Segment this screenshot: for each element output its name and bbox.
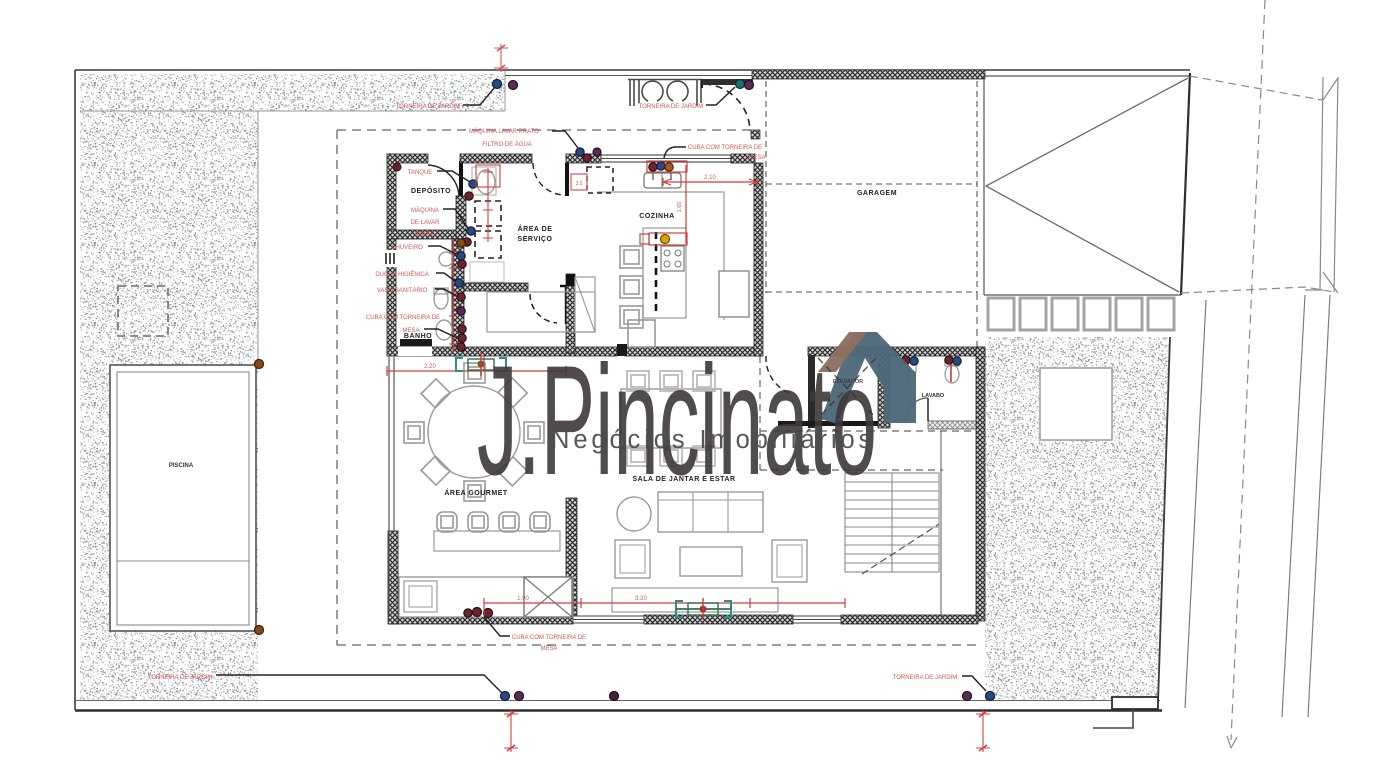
svg-text:BANHO: BANHO	[404, 333, 432, 340]
svg-text:PISCINA: PISCINA	[169, 463, 194, 469]
svg-text:TORNEIRA DE JARDIM: TORNEIRA DE JARDIM	[639, 104, 704, 110]
svg-text:CUBA COM TORNEIRA DE: CUBA COM TORNEIRA DE	[366, 315, 440, 321]
svg-text:ELEVADOR: ELEVADOR	[833, 379, 863, 385]
svg-text:TORNEIRA DE JARDIM: TORNEIRA DE JARDIM	[396, 104, 461, 110]
svg-text:DEPÓSITO: DEPÓSITO	[411, 186, 451, 195]
svg-text:MÁQUINA: MÁQUINA	[411, 207, 439, 214]
svg-text:FILTRO DE ÁGUA: FILTRO DE ÁGUA	[482, 141, 532, 148]
svg-text:2.20: 2.20	[424, 364, 436, 370]
svg-text:MÁQUINA LAVAR PRATO: MÁQUINA LAVAR PRATO	[469, 128, 539, 135]
svg-text:1.90: 1.90	[517, 596, 529, 602]
svg-text:Negócios Imobiliários: Negócios Imobiliários	[551, 426, 875, 454]
svg-text:3.20: 3.20	[635, 596, 647, 602]
svg-text:2.10: 2.10	[704, 175, 716, 181]
svg-text:TANQUE: TANQUE	[408, 170, 433, 176]
svg-text:MESA: MESA	[402, 328, 419, 334]
svg-text:MESA: MESA	[540, 646, 557, 652]
svg-text:J.Pincinato: J.Pincinato	[477, 334, 877, 508]
svg-text:COZINHA: COZINHA	[639, 213, 674, 220]
svg-text:CUBA COM TORNEIRA DE: CUBA COM TORNEIRA DE	[512, 635, 586, 641]
svg-text:ÁREA DE: ÁREA DE	[518, 224, 553, 233]
svg-text:MESA: MESA	[748, 155, 765, 161]
svg-text:1.65: 1.65	[677, 202, 683, 213]
svg-text:DE LAVAR: DE LAVAR	[411, 220, 440, 226]
svg-text:TORNEIRA DE JARDIM: TORNEIRA DE JARDIM	[148, 675, 213, 681]
svg-text:3.0: 3.0	[576, 181, 583, 187]
svg-text:TORNEIRA DE JARDIM: TORNEIRA DE JARDIM	[893, 675, 958, 681]
svg-text:DUCHA HIGIÊNICA: DUCHA HIGIÊNICA	[375, 270, 428, 278]
svg-text:VASO SANITÁRIO: VASO SANITÁRIO	[377, 287, 428, 294]
svg-text:ROUPA: ROUPA	[415, 232, 436, 238]
svg-text:CUBA COM TORNEIRA DE: CUBA COM TORNEIRA DE	[688, 145, 762, 151]
svg-text:GARAGEM: GARAGEM	[857, 190, 897, 197]
svg-text:CHUVEIRO: CHUVEIRO	[391, 245, 423, 251]
svg-text:LAVABO: LAVABO	[922, 393, 945, 399]
svg-text:SERVIÇO: SERVIÇO	[518, 236, 553, 243]
